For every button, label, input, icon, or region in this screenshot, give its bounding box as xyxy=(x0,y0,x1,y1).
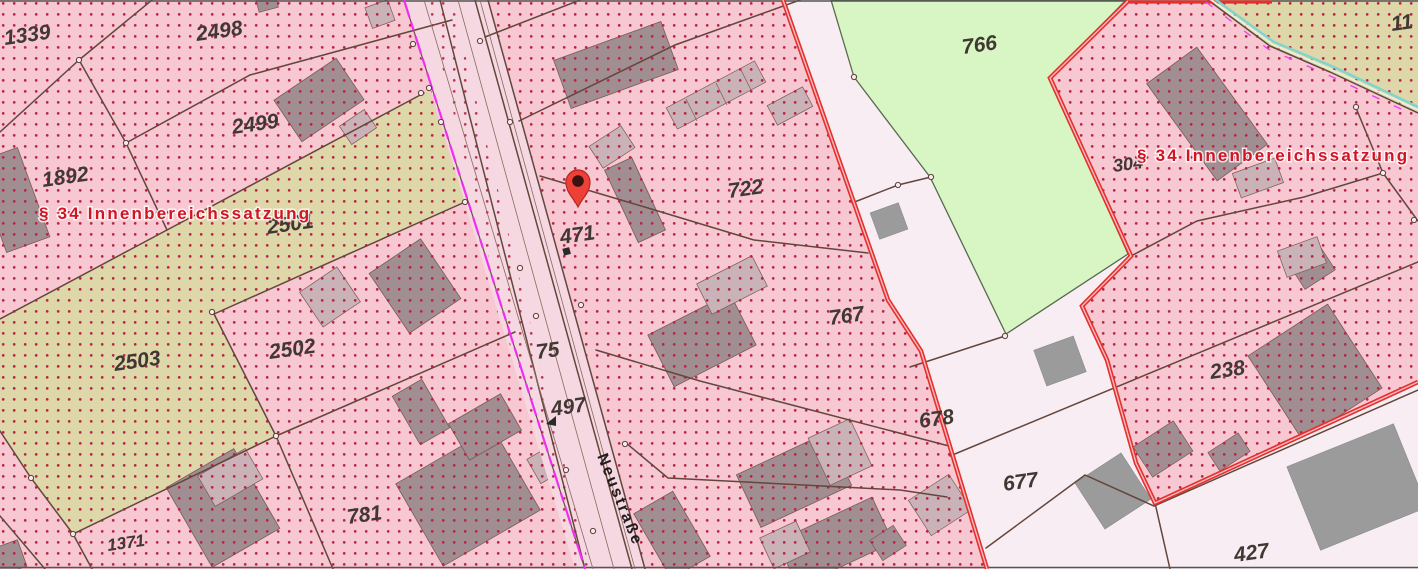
svg-text:§ 34 Innenbereichssatzung: § 34 Innenbereichssatzung xyxy=(39,204,311,223)
svg-text:11: 11 xyxy=(1389,10,1414,36)
svg-text:766: 766 xyxy=(960,31,998,59)
svg-text:722: 722 xyxy=(726,175,764,203)
svg-text:§ 34 Innenbereichssatzung: § 34 Innenbereichssatzung xyxy=(1137,146,1409,165)
svg-text:75: 75 xyxy=(534,338,561,364)
svg-text:781: 781 xyxy=(345,501,383,529)
svg-text:678: 678 xyxy=(917,405,955,433)
